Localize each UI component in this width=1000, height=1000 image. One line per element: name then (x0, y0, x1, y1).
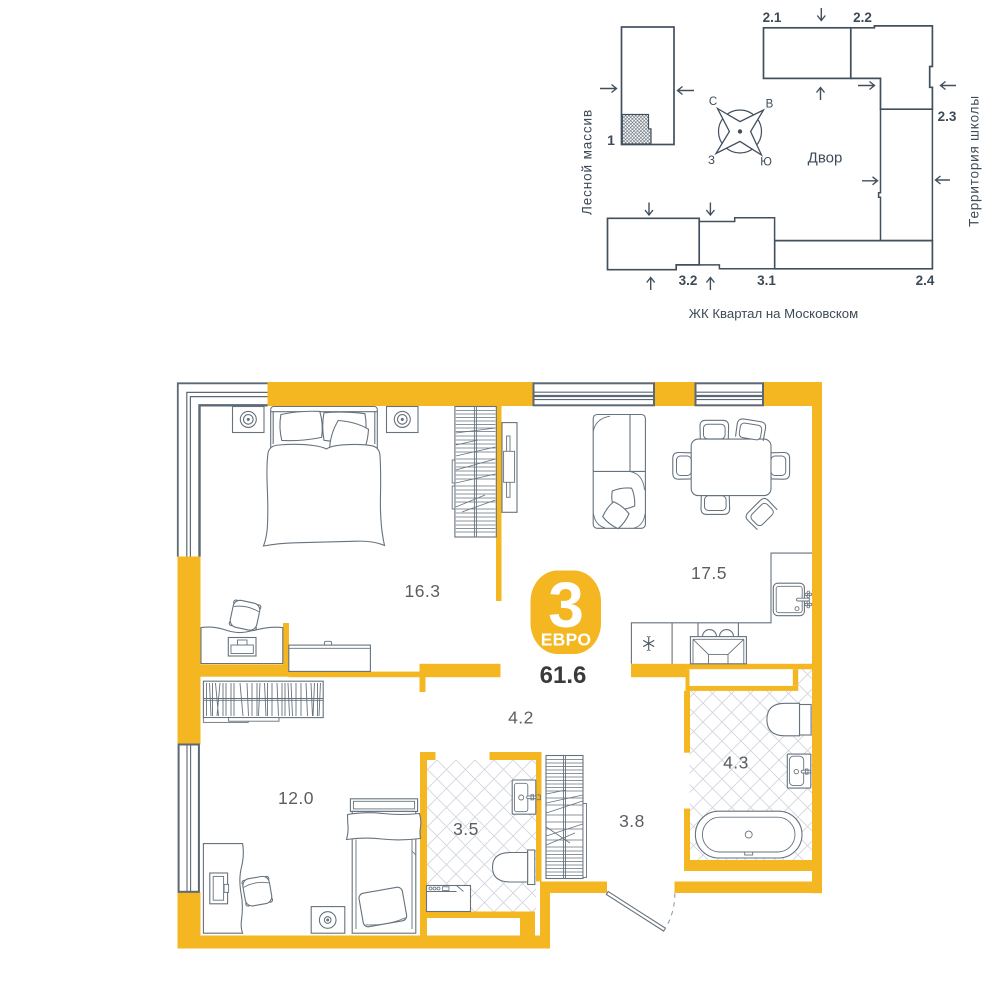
svg-text:61.6: 61.6 (540, 662, 587, 689)
svg-text:16.3: 16.3 (404, 581, 440, 601)
svg-text:2.2: 2.2 (853, 10, 872, 25)
svg-text:3.5: 3.5 (453, 819, 479, 839)
svg-text:3.8: 3.8 (619, 811, 645, 831)
svg-text:ЖК Квартал на Московском: ЖК Квартал на Московском (689, 306, 858, 321)
svg-text:Территория школы: Территория школы (967, 95, 982, 227)
svg-text:2.4: 2.4 (916, 273, 935, 288)
svg-text:2.3: 2.3 (938, 109, 957, 124)
svg-text:1: 1 (607, 132, 615, 148)
svg-text:Двор: Двор (808, 150, 843, 167)
svg-text:12.0: 12.0 (278, 788, 314, 808)
svg-text:2.1: 2.1 (763, 10, 782, 25)
svg-text:ЕВРО: ЕВРО (541, 630, 592, 650)
svg-text:З: З (708, 155, 715, 167)
svg-text:В: В (766, 99, 774, 111)
svg-text:3.1: 3.1 (757, 273, 776, 288)
svg-text:4.3: 4.3 (723, 753, 749, 773)
svg-text:Лесной массив: Лесной массив (580, 109, 595, 215)
svg-text:4.2: 4.2 (508, 708, 534, 728)
svg-text:17.5: 17.5 (691, 563, 727, 583)
svg-text:С: С (709, 96, 717, 108)
svg-text:Ю: Ю (760, 157, 772, 169)
svg-text:3.2: 3.2 (679, 273, 698, 288)
